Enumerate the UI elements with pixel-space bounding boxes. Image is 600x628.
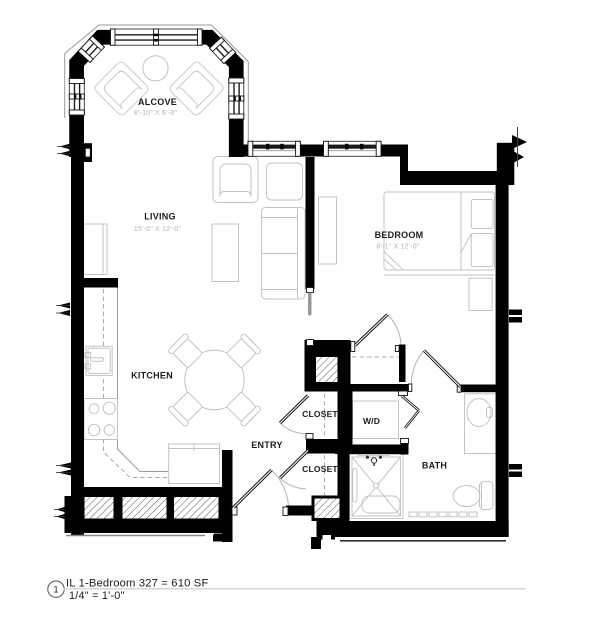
svg-text:1: 1 <box>53 585 58 595</box>
svg-text:BEDROOM: BEDROOM <box>375 230 424 240</box>
svg-text:IL 1-Bedroom 327 = 610 SF: IL 1-Bedroom 327 = 610 SF <box>66 577 208 589</box>
svg-text:CLOSET: CLOSET <box>302 409 338 419</box>
svg-text:W/D: W/D <box>363 416 380 426</box>
svg-text:15'-6" X 12'-0": 15'-6" X 12'-0" <box>134 226 182 233</box>
svg-text:1/4" = 1'-0": 1/4" = 1'-0" <box>69 590 125 602</box>
svg-text:BATH: BATH <box>422 461 447 471</box>
svg-text:8'-1" X 12'-0": 8'-1" X 12'-0" <box>376 244 419 251</box>
svg-text:ALCOVE: ALCOVE <box>138 97 177 107</box>
svg-text:LIVING: LIVING <box>144 212 176 222</box>
svg-text:CLOSET: CLOSET <box>302 464 338 474</box>
svg-text:ENTRY: ENTRY <box>251 440 282 450</box>
svg-text:8'-10" X 6'-8": 8'-10" X 6'-8" <box>134 110 177 117</box>
svg-text:KITCHEN: KITCHEN <box>131 371 173 381</box>
